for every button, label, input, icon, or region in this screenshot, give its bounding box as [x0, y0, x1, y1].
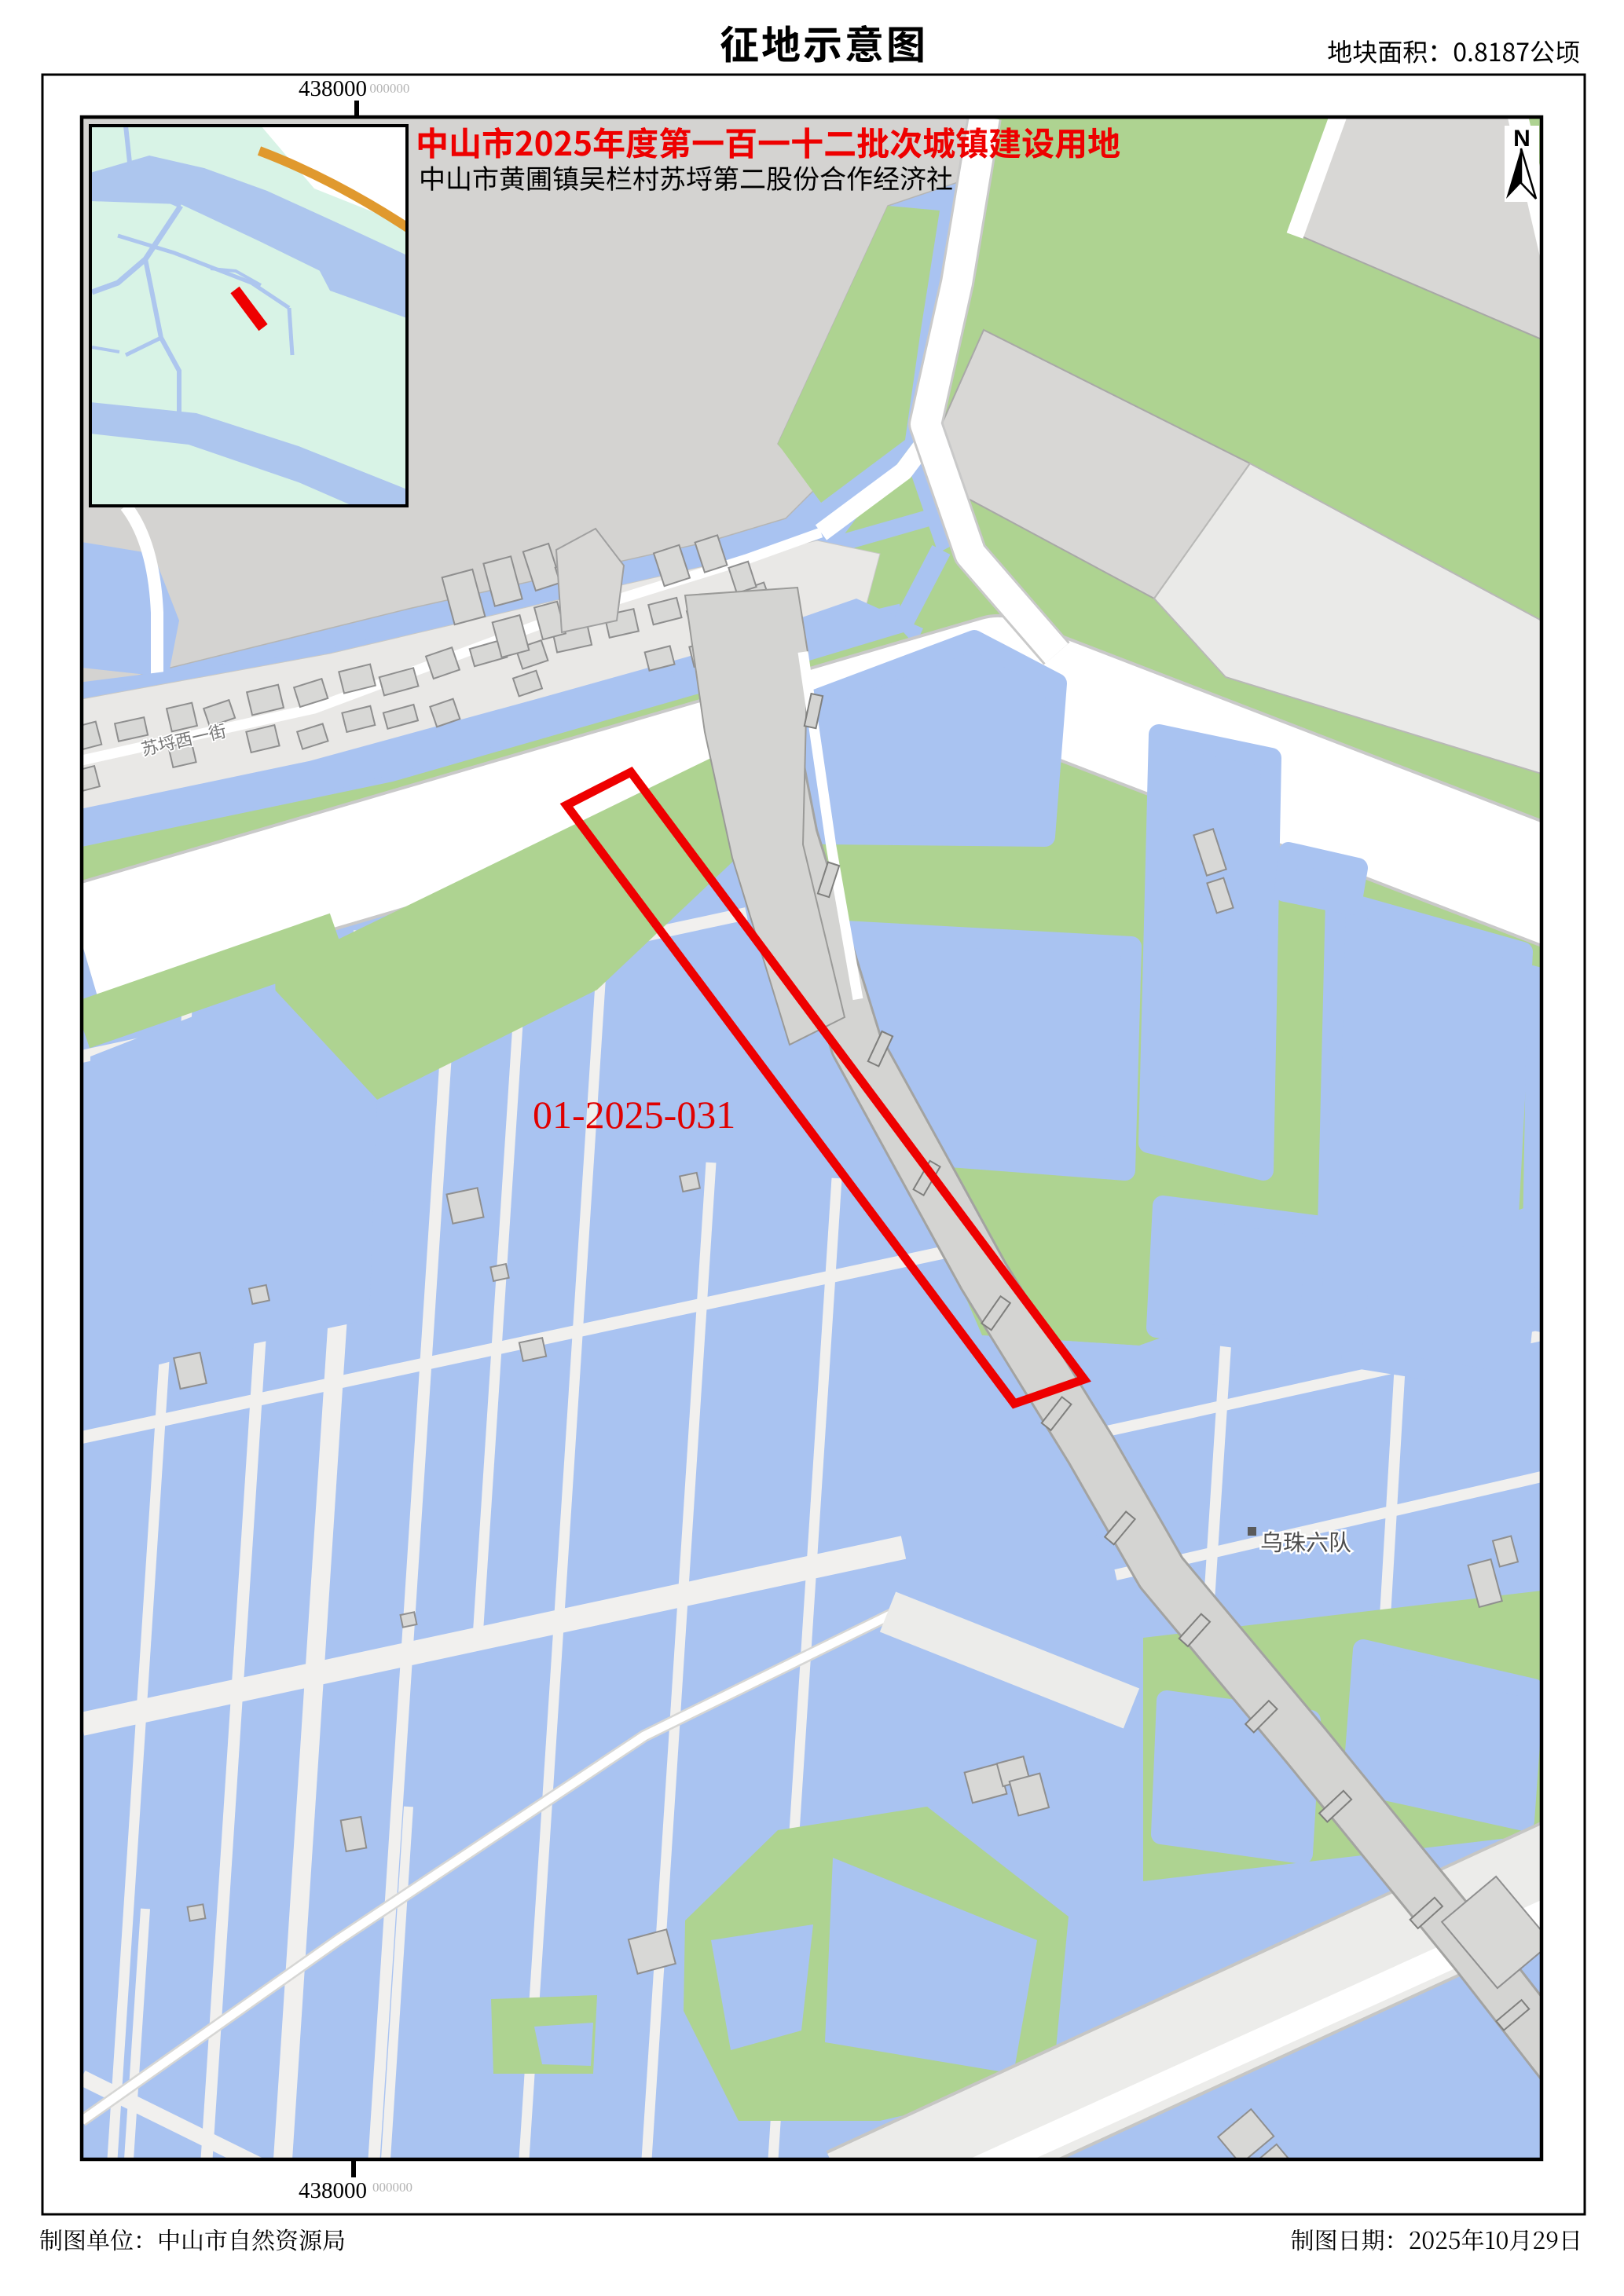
- svg-text:01-2025-031: 01-2025-031: [533, 1093, 735, 1137]
- svg-text:乌珠六队: 乌珠六队: [1260, 1525, 1351, 1558]
- svg-text:N: N: [1513, 126, 1531, 152]
- svg-text:438000: 438000: [299, 2178, 367, 2203]
- svg-text:000000: 000000: [372, 2180, 412, 2195]
